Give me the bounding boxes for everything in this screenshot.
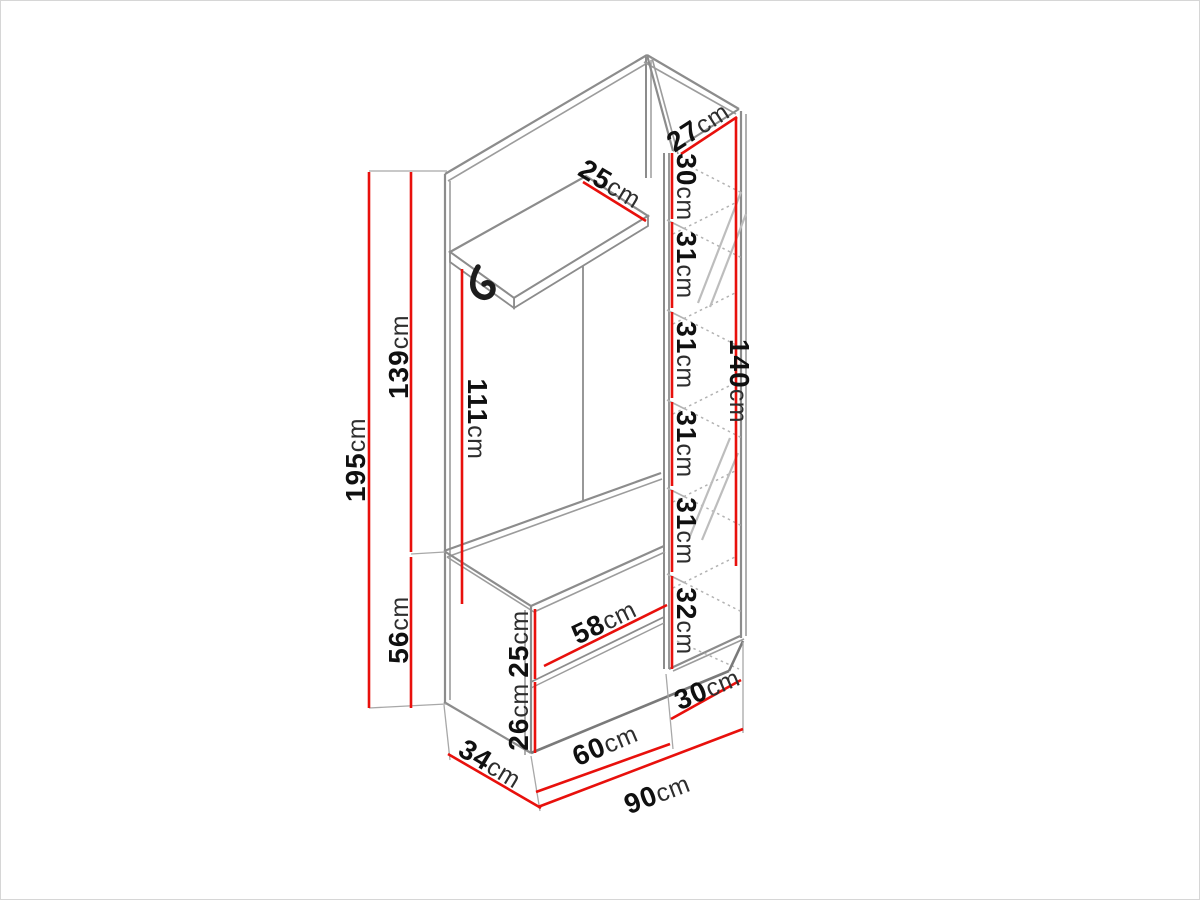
dimension-diagram: 195cm 139cm 56cm 111cm 25cm 27cm 30cm 31… bbox=[0, 0, 1200, 900]
dim-line-27 bbox=[681, 117, 737, 154]
hat-shelf bbox=[450, 176, 648, 308]
dim-line-30-width bbox=[671, 680, 741, 719]
dim-line-58 bbox=[544, 605, 667, 666]
dim-line-90 bbox=[538, 729, 743, 807]
dim-line-34 bbox=[448, 754, 541, 808]
drawer-gap bbox=[531, 617, 664, 682]
divider-row bbox=[667, 382, 742, 438]
wardrobe-line-drawing bbox=[1, 1, 1200, 900]
mirror-hatch-marks bbox=[690, 192, 746, 540]
shoe-compartment-dividers bbox=[667, 164, 742, 669]
divider-row bbox=[667, 202, 742, 258]
mirror-shoe-column bbox=[644, 55, 746, 671]
divider-row bbox=[667, 556, 742, 612]
divider-row bbox=[667, 292, 742, 348]
dim-line-60 bbox=[536, 744, 670, 792]
